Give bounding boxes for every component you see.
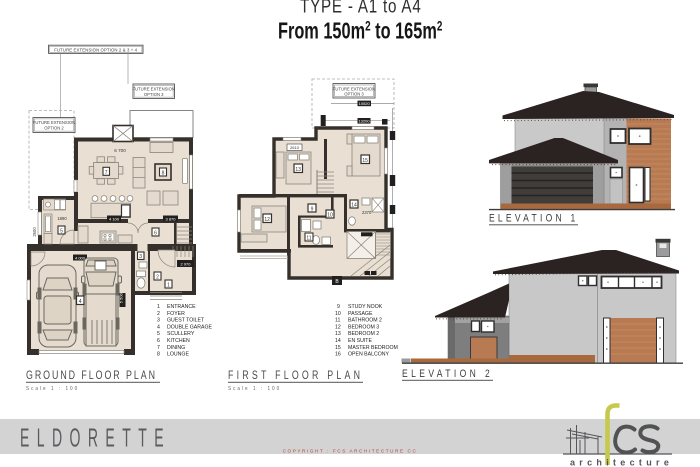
svg-text:2 970: 2 970 xyxy=(180,262,191,267)
svg-text:11: 11 xyxy=(306,236,311,242)
svg-text:FUTURE EXTENSION OPTION 2 & 3: FUTURE EXTENSION OPTION 2 & 3 + 4 xyxy=(54,47,137,52)
svg-text:OPTION 2: OPTION 2 xyxy=(44,125,64,130)
svg-text:13: 13 xyxy=(295,167,301,173)
svg-text:2610: 2610 xyxy=(290,145,300,150)
svg-text:From 150m2 to 165m2: From 150m2 to 165m2 xyxy=(278,18,443,44)
svg-text:2600: 2600 xyxy=(32,227,37,237)
svg-text:5 500: 5 500 xyxy=(119,292,124,303)
svg-text:1890: 1890 xyxy=(57,216,67,221)
svg-text:DINING: DINING xyxy=(167,345,185,351)
svg-text:STUDY NOOK: STUDY NOOK xyxy=(348,304,383,310)
svg-text:9: 9 xyxy=(337,304,340,310)
svg-text:10520: 10520 xyxy=(359,101,371,106)
svg-text:PASSAGE: PASSAGE xyxy=(348,311,373,317)
svg-text:12: 12 xyxy=(335,324,341,330)
svg-text:ELDORETTE: ELDORETTE xyxy=(20,424,164,453)
svg-text:BATHROOM 2: BATHROOM 2 xyxy=(348,318,382,324)
svg-text:2: 2 xyxy=(157,311,160,317)
svg-text:13: 13 xyxy=(335,331,341,337)
svg-text:14: 14 xyxy=(351,203,357,209)
svg-text:14: 14 xyxy=(335,338,341,344)
svg-text:2370: 2370 xyxy=(362,210,372,215)
svg-text:7: 7 xyxy=(157,345,160,351)
svg-text:9: 9 xyxy=(311,207,314,213)
svg-text:GUEST TOILET: GUEST TOILET xyxy=(167,318,205,324)
svg-text:OPTION 3: OPTION 3 xyxy=(344,92,364,97)
svg-text:FOYER: FOYER xyxy=(167,311,185,317)
svg-text:BEDROOM 2: BEDROOM 2 xyxy=(348,331,379,337)
svg-text:3: 3 xyxy=(157,318,160,324)
svg-text:10: 10 xyxy=(327,213,333,219)
svg-text:1: 1 xyxy=(157,304,160,310)
svg-text:FUTURE EXTENSION: FUTURE EXTENSION xyxy=(133,87,175,92)
svg-text:8: 8 xyxy=(157,352,160,358)
svg-text:8: 8 xyxy=(162,170,165,176)
svg-text:4: 4 xyxy=(79,299,82,305)
svg-text:5: 5 xyxy=(60,228,63,234)
svg-text:13200: 13200 xyxy=(358,119,370,124)
svg-text:TYPE - A1 to A4: TYPE - A1 to A4 xyxy=(300,0,421,17)
svg-text:15: 15 xyxy=(335,345,341,351)
svg-text:6: 6 xyxy=(154,230,157,236)
svg-text:DOUBLE GARAGE: DOUBLE GARAGE xyxy=(167,324,213,330)
svg-text:KITCHEN: KITCHEN xyxy=(167,338,190,344)
svg-text:4 100: 4 100 xyxy=(109,216,120,221)
svg-text:LOUNGE: LOUNGE xyxy=(167,352,189,358)
svg-text:COPYRIGHT : FCS ARCHITECTURE: COPYRIGHT : FCS ARCHITECTURE CC xyxy=(283,449,418,454)
svg-text:2: 2 xyxy=(156,274,159,280)
svg-text:FIRST FLOOR PLAN: FIRST FLOOR PLAN xyxy=(228,370,360,382)
svg-text:10: 10 xyxy=(335,311,341,317)
svg-text:11: 11 xyxy=(335,318,340,324)
svg-text:SCULLERY: SCULLERY xyxy=(167,331,195,337)
svg-text:4 000: 4 000 xyxy=(75,255,86,260)
svg-text:FUTURE EXTENSION: FUTURE EXTENSION xyxy=(33,120,75,125)
svg-text:ENTRANCE: ENTRANCE xyxy=(167,304,196,310)
svg-text:MASTER BEDROOM: MASTER BEDROOM xyxy=(348,345,398,351)
svg-text:EN SUITE: EN SUITE xyxy=(348,338,372,344)
svg-text:OPTION 3: OPTION 3 xyxy=(144,92,164,97)
svg-text:16: 16 xyxy=(335,352,341,358)
svg-text:3: 3 xyxy=(139,254,142,260)
svg-text:5: 5 xyxy=(157,331,160,337)
svg-text:BEDROOM 3: BEDROOM 3 xyxy=(348,324,379,330)
svg-text:architecture: architecture xyxy=(570,458,673,467)
svg-text:1: 1 xyxy=(167,282,170,288)
svg-text:3 870: 3 870 xyxy=(165,216,176,221)
svg-text:6: 6 xyxy=(157,338,160,344)
svg-text:OPEN BALCONY: OPEN BALCONY xyxy=(348,352,389,358)
svg-text:6 700: 6 700 xyxy=(114,148,126,153)
svg-text:4: 4 xyxy=(157,324,160,330)
svg-text:7: 7 xyxy=(105,170,108,176)
svg-text:GROUND FLOOR PLAN: GROUND FLOOR PLAN xyxy=(26,370,155,382)
svg-text:12: 12 xyxy=(264,217,270,223)
svg-text:15: 15 xyxy=(362,158,368,164)
